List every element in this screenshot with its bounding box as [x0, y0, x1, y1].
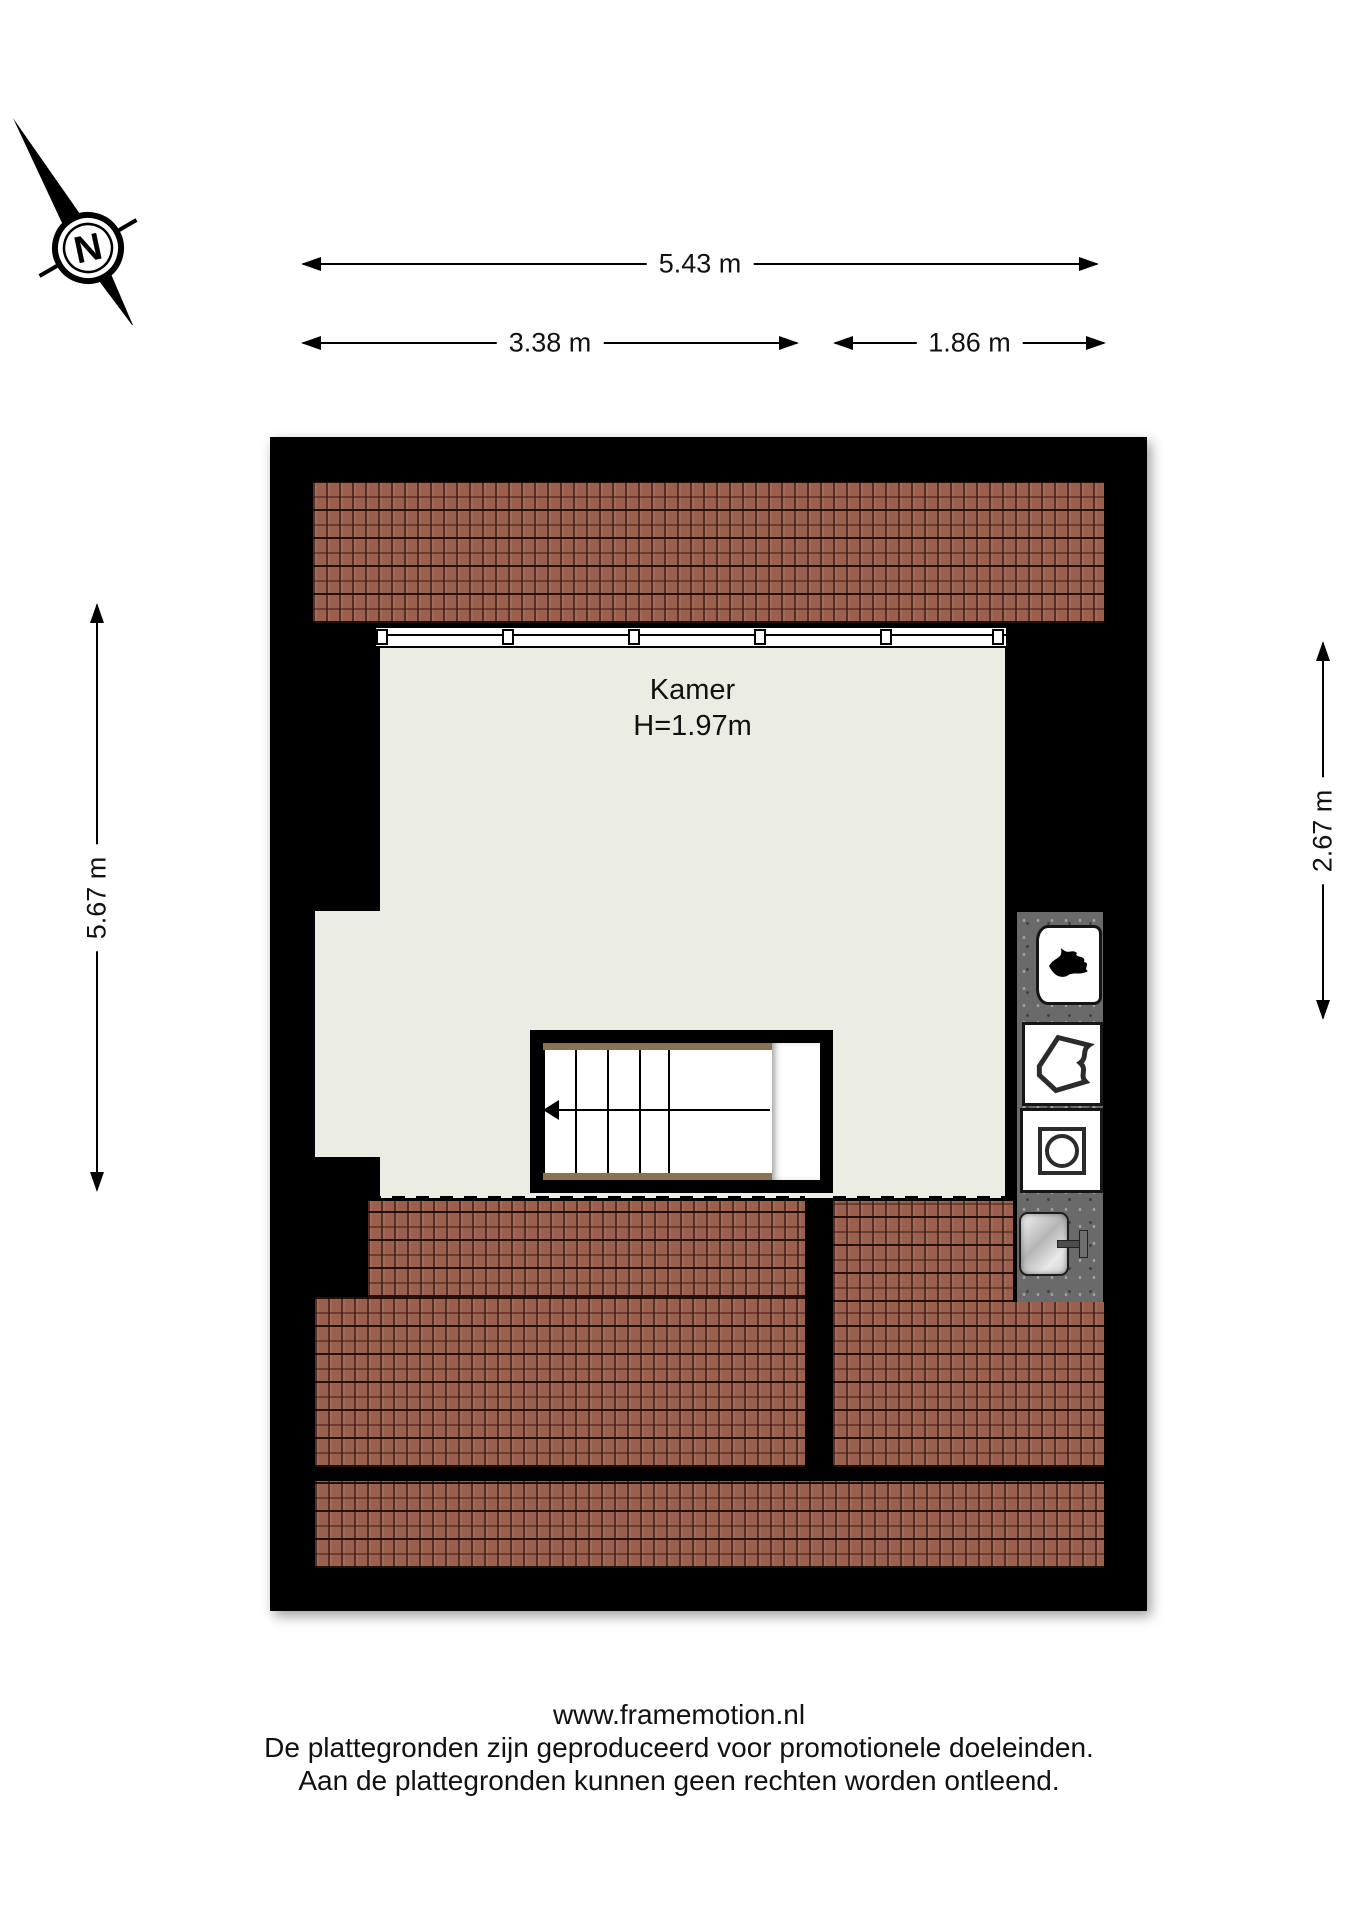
- window-mullion: [992, 629, 1004, 645]
- laundry-appliance-icon: [1025, 1025, 1100, 1103]
- window-band: [376, 626, 1006, 648]
- arrow-left-icon: [301, 336, 321, 350]
- arrow-right-icon: [779, 336, 799, 350]
- roof-tiles-mid-right-lower: [833, 1302, 1104, 1467]
- laundry-appliance: [1022, 1022, 1103, 1106]
- window-mullion: [502, 629, 514, 645]
- dimension-top-total-label: 5.43 m: [647, 249, 754, 280]
- room-ceiling-height: H=1.97m: [380, 708, 1005, 744]
- footer-disclaimer-1: De plattegronden zijn geproduceerd voor …: [0, 1731, 1358, 1764]
- washing-machine: [1020, 1108, 1103, 1193]
- dimension-top-left-label: 3.38 m: [497, 328, 604, 359]
- dimension-top-right-label: 1.86 m: [916, 328, 1023, 359]
- arrow-right-icon: [1079, 257, 1099, 271]
- stairwell-opening: [772, 1043, 820, 1180]
- dimension-right-label: 2.67 m: [1308, 777, 1339, 884]
- stair-rail: [543, 1043, 772, 1050]
- dimension-right-vertical: 2.67 m: [1322, 643, 1324, 1018]
- footer: www.framemotion.nl De plattegronden zijn…: [0, 1698, 1358, 1797]
- window-mullion: [880, 629, 892, 645]
- window-mullion: [754, 629, 766, 645]
- stair-rail: [543, 1173, 772, 1180]
- dimension-left-vertical: 5.67 m: [96, 605, 98, 1190]
- dimension-top-left-segment: 3.38 m: [303, 342, 797, 344]
- arrow-up-icon: [1316, 641, 1330, 661]
- counter-column: [1017, 912, 1103, 1302]
- staircase: [530, 1030, 833, 1193]
- arrow-down-icon: [90, 1172, 104, 1192]
- roof-tiles-mid-left-lower: [315, 1297, 805, 1467]
- stair-direction-arrow-icon: [543, 1100, 559, 1120]
- room-floor-notch: [315, 911, 381, 1157]
- arrow-up-icon: [90, 603, 104, 623]
- dimension-left-label: 5.67 m: [82, 844, 113, 951]
- dimension-top-total: 5.43 m: [303, 263, 1097, 265]
- washing-machine-icon: [1023, 1111, 1100, 1190]
- flame-icon: [1039, 928, 1099, 1002]
- sink-faucet-handle: [1079, 1230, 1088, 1258]
- footer-disclaimer-2: Aan de plattegronden kunnen geen rechten…: [0, 1764, 1358, 1797]
- stair-treads: [543, 1050, 670, 1173]
- compass-needle-icon: N: [8, 95, 178, 325]
- dimension-top-right-segment: 1.86 m: [835, 342, 1104, 344]
- arrow-right-icon: [1086, 336, 1106, 350]
- roof-tiles-mid-right: [833, 1201, 1013, 1302]
- footer-website: www.framemotion.nl: [0, 1698, 1358, 1731]
- room-label: Kamer H=1.97m: [380, 672, 1005, 744]
- floor-plan: Kamer H=1.97m: [270, 437, 1147, 1611]
- window-mullion: [628, 629, 640, 645]
- boiler-unit: [1036, 925, 1102, 1005]
- roof-tiles-bottom: [315, 1481, 1104, 1568]
- room-name: Kamer: [380, 672, 1005, 708]
- roof-tiles-mid-left: [368, 1201, 805, 1297]
- compass-rose: N: [8, 95, 178, 325]
- stair-direction-line: [547, 1109, 770, 1111]
- arrow-down-icon: [1316, 1000, 1330, 1020]
- arrow-left-icon: [833, 336, 853, 350]
- window-mullion: [376, 629, 388, 645]
- staircase-treads-area: [543, 1043, 772, 1180]
- arrow-left-icon: [301, 257, 321, 271]
- roof-tiles-top: [313, 482, 1104, 623]
